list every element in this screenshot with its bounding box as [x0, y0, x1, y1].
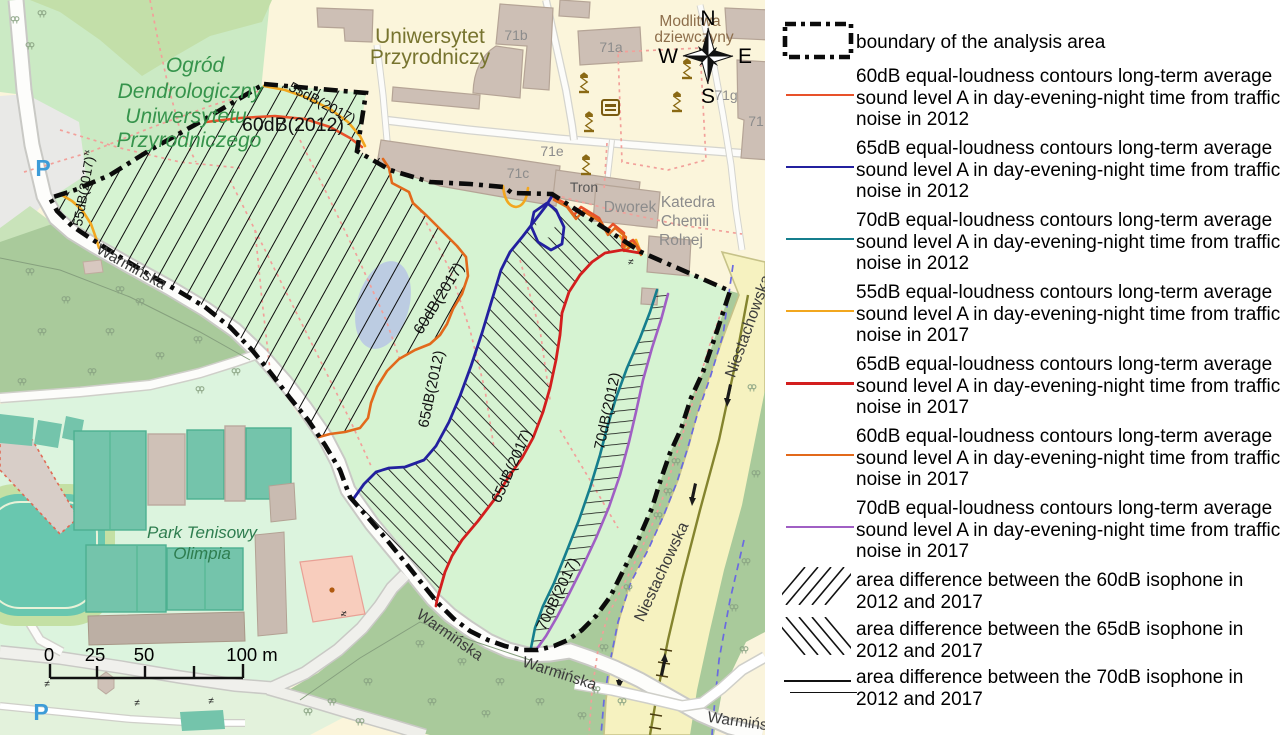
- svg-text:Uniwersytet: Uniwersytet: [375, 25, 485, 48]
- svg-text:≠: ≠: [44, 679, 50, 690]
- svg-text:P: P: [33, 699, 48, 725]
- svg-text:Rolnej: Rolnej: [659, 232, 703, 249]
- svg-text:Dworek: Dworek: [604, 199, 657, 216]
- svg-text:0: 0: [44, 644, 54, 665]
- svg-text:71b: 71b: [504, 27, 528, 43]
- svg-text:50: 50: [134, 644, 155, 665]
- svg-text:dziewczyny: dziewczyny: [654, 29, 733, 46]
- svg-text:71e: 71e: [540, 143, 564, 159]
- svg-text:Przyrodniczego: Przyrodniczego: [117, 129, 262, 152]
- svg-text:Przyrodniczy: Przyrodniczy: [370, 46, 491, 69]
- svg-text:Tron: Tron: [570, 179, 598, 195]
- svg-text:Katedra: Katedra: [661, 194, 716, 211]
- svg-text:≠: ≠: [208, 696, 214, 707]
- svg-text:25: 25: [85, 644, 106, 665]
- svg-text:E: E: [738, 45, 752, 68]
- svg-text:Ogród: Ogród: [166, 54, 226, 77]
- svg-text:S: S: [701, 85, 715, 108]
- svg-text:Uniwersytetu: Uniwersytetu: [125, 105, 247, 128]
- svg-text:Park Tenisowy: Park Tenisowy: [147, 523, 258, 542]
- svg-text:Chemii: Chemii: [661, 213, 709, 230]
- svg-text:≠: ≠: [134, 698, 140, 709]
- svg-text:100 m: 100 m: [226, 644, 277, 665]
- svg-text:71a: 71a: [599, 39, 623, 55]
- svg-text:P: P: [35, 155, 50, 181]
- svg-text:W: W: [658, 45, 678, 68]
- svg-text:Dendrologiczny: Dendrologiczny: [118, 80, 264, 103]
- svg-text:71: 71: [748, 113, 764, 129]
- svg-text:60dB(2012): 60dB(2012): [242, 114, 344, 136]
- svg-text:71g: 71g: [714, 87, 737, 103]
- svg-text:N: N: [700, 7, 715, 30]
- svg-text:Olimpia: Olimpia: [173, 544, 231, 563]
- svg-text:71c: 71c: [507, 165, 530, 181]
